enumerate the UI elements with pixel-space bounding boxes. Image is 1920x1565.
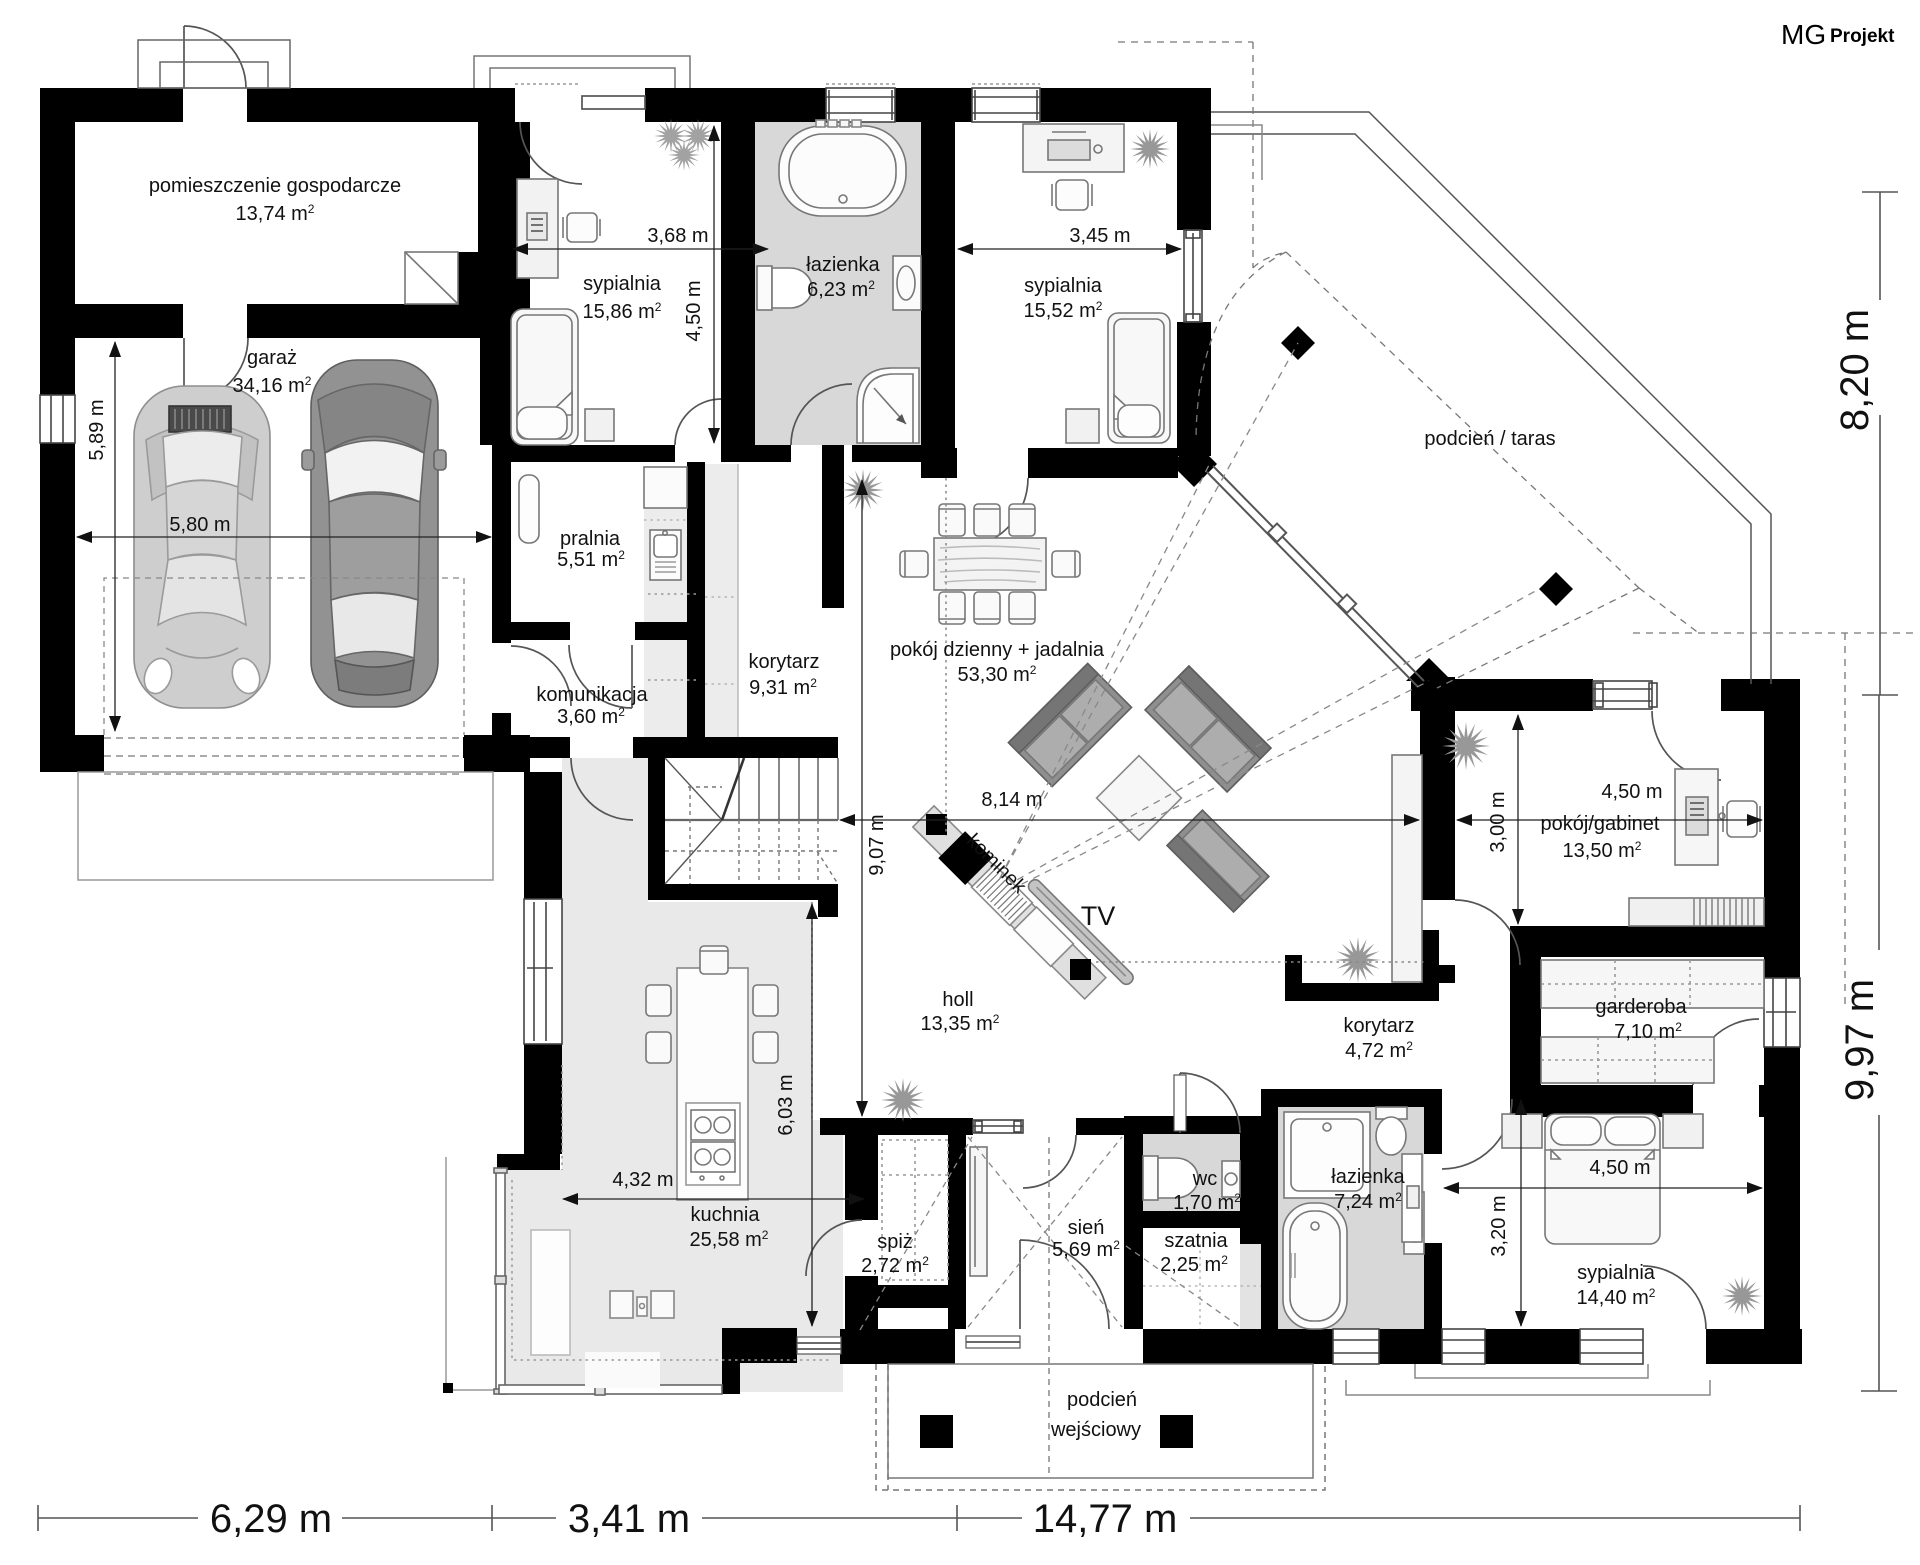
svg-text:kuchnia: kuchnia bbox=[691, 1204, 761, 1226]
svg-text:3,68 m: 3,68 m bbox=[647, 225, 708, 247]
svg-text:5,80 m: 5,80 m bbox=[169, 514, 230, 536]
svg-text:pomieszczenie gospodarcze: pomieszczenie gospodarcze bbox=[149, 175, 401, 197]
svg-text:3,20 m: 3,20 m bbox=[1488, 1195, 1510, 1256]
svg-text:9,07 m: 9,07 m bbox=[866, 814, 888, 875]
svg-text:9,31 m2: 9,31 m2 bbox=[749, 676, 817, 699]
svg-text:pralnia: pralnia bbox=[560, 528, 621, 550]
svg-text:łazienka: łazienka bbox=[1331, 1166, 1405, 1188]
svg-text:2,72 m2: 2,72 m2 bbox=[861, 1254, 929, 1277]
svg-text:3,00 m: 3,00 m bbox=[1487, 791, 1509, 852]
svg-text:5,89 m: 5,89 m bbox=[86, 399, 108, 460]
svg-text:14,77 m: 14,77 m bbox=[1033, 1497, 1178, 1541]
svg-text:podcień / taras: podcień / taras bbox=[1424, 428, 1555, 450]
svg-text:wc: wc bbox=[1192, 1168, 1217, 1190]
svg-text:7,10 m2: 7,10 m2 bbox=[1614, 1020, 1682, 1043]
svg-text:6,29 m: 6,29 m bbox=[210, 1497, 332, 1541]
svg-text:13,50 m2: 13,50 m2 bbox=[1563, 839, 1642, 862]
svg-text:5,69 m2: 5,69 m2 bbox=[1052, 1238, 1120, 1261]
svg-text:8,14 m: 8,14 m bbox=[981, 789, 1042, 811]
svg-text:4,50 m: 4,50 m bbox=[1589, 1157, 1650, 1179]
svg-text:sypialnia: sypialnia bbox=[583, 273, 662, 295]
svg-text:2,25 m2: 2,25 m2 bbox=[1160, 1253, 1228, 1276]
svg-text:6,23 m2: 6,23 m2 bbox=[807, 278, 875, 301]
svg-text:7,24 m2: 7,24 m2 bbox=[1334, 1190, 1402, 1213]
svg-text:garaż: garaż bbox=[247, 347, 297, 369]
svg-text:TV: TV bbox=[1081, 901, 1116, 931]
svg-text:8,20 m: 8,20 m bbox=[1833, 309, 1877, 431]
svg-text:15,52 m2: 15,52 m2 bbox=[1024, 299, 1103, 322]
svg-text:korytarz: korytarz bbox=[1343, 1015, 1414, 1037]
svg-text:53,30 m2: 53,30 m2 bbox=[958, 663, 1037, 686]
svg-text:korytarz: korytarz bbox=[748, 651, 819, 673]
svg-text:5,51 m2: 5,51 m2 bbox=[557, 548, 625, 571]
svg-text:4,32 m: 4,32 m bbox=[612, 1169, 673, 1191]
svg-text:sypialnia: sypialnia bbox=[1024, 275, 1103, 297]
svg-text:6,03 m: 6,03 m bbox=[775, 1074, 797, 1135]
svg-text:MG: MG bbox=[1781, 19, 1826, 50]
svg-text:sypialnia: sypialnia bbox=[1577, 1262, 1656, 1284]
svg-text:4,50 m: 4,50 m bbox=[683, 280, 705, 341]
svg-text:holl: holl bbox=[942, 989, 973, 1011]
svg-text:wejściowy: wejściowy bbox=[1050, 1419, 1141, 1441]
svg-text:Projekt: Projekt bbox=[1830, 26, 1895, 47]
svg-text:14,40 m2: 14,40 m2 bbox=[1577, 1286, 1656, 1309]
svg-text:garderoba: garderoba bbox=[1595, 996, 1687, 1018]
svg-text:spiż: spiż bbox=[877, 1231, 913, 1253]
svg-text:3,60 m2: 3,60 m2 bbox=[557, 705, 625, 728]
svg-text:pokój dzienny + jadalnia: pokój dzienny + jadalnia bbox=[890, 639, 1105, 661]
svg-text:34,16 m2: 34,16 m2 bbox=[233, 374, 312, 397]
svg-text:4,50 m: 4,50 m bbox=[1601, 781, 1662, 803]
svg-text:podcień: podcień bbox=[1067, 1389, 1137, 1411]
svg-text:pokój/gabinet: pokój/gabinet bbox=[1541, 813, 1660, 835]
svg-text:13,35 m2: 13,35 m2 bbox=[921, 1012, 1000, 1035]
svg-text:4,72 m2: 4,72 m2 bbox=[1345, 1039, 1413, 1062]
svg-text:25,58 m2: 25,58 m2 bbox=[690, 1228, 769, 1251]
svg-text:komunikacja: komunikacja bbox=[536, 684, 648, 706]
svg-text:sień: sień bbox=[1068, 1217, 1105, 1239]
svg-text:13,74 m2: 13,74 m2 bbox=[236, 202, 315, 225]
svg-text:1,70 m2: 1,70 m2 bbox=[1173, 1191, 1241, 1214]
svg-text:3,45 m: 3,45 m bbox=[1069, 225, 1130, 247]
svg-text:łazienka: łazienka bbox=[806, 254, 880, 276]
svg-text:3,41 m: 3,41 m bbox=[568, 1497, 690, 1541]
svg-text:szatnia: szatnia bbox=[1164, 1230, 1228, 1252]
svg-text:15,86 m2: 15,86 m2 bbox=[583, 300, 662, 323]
svg-text:9,97 m: 9,97 m bbox=[1838, 979, 1882, 1101]
